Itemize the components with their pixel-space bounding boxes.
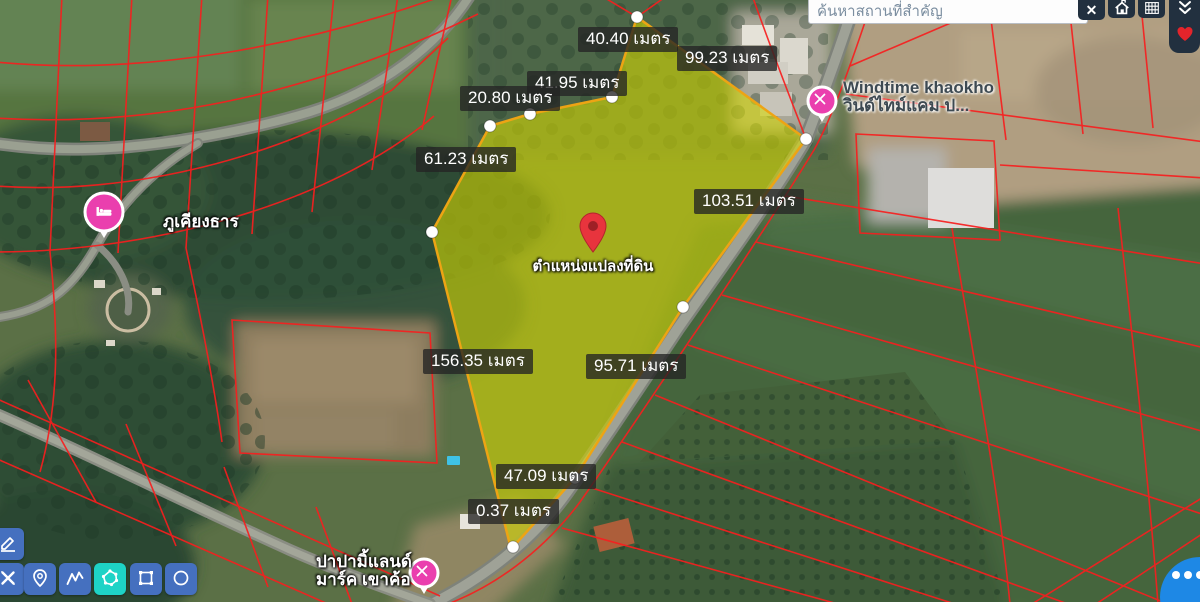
measurement-label: 47.09 เมตร (496, 464, 596, 489)
pencil-icon (0, 533, 18, 556)
basemap-grid-button[interactable] (1138, 0, 1165, 18)
measurement-label: 61.23 เมตร (416, 147, 516, 172)
home-icon (1112, 0, 1132, 20)
poi-label-line: ปาปามิ้แลนด์ (316, 553, 412, 571)
grid-icon (1142, 0, 1162, 20)
home-button[interactable] (1108, 0, 1135, 18)
map-stage[interactable]: 40.40 เมตร99.23 เมตร41.95 เมตร20.80 เมตร… (0, 0, 1200, 602)
measure-line-button[interactable] (59, 563, 91, 595)
measurement-label: 95.71 เมตร (586, 354, 686, 379)
measurement-label: 156.35 เมตร (423, 349, 533, 374)
measurement-label: 103.51 เมตร (694, 189, 804, 214)
poi-marker-windtime-khaokho[interactable] (805, 84, 839, 131)
favorite-heart-icon[interactable] (1175, 24, 1195, 49)
measurement-label: 0.37 เมตร (468, 499, 559, 524)
poi-label-papa-me-land: ปาปามิ้แลนด์มาร์ค เขาค้อ (316, 553, 412, 589)
poi-marker-phu-khiang-than[interactable] (82, 190, 126, 247)
polygon-icon (100, 568, 120, 591)
draw-rectangle-button[interactable] (130, 563, 162, 595)
parcel-pin-label: ตำแหน่งแปลงที่ดิน (533, 254, 654, 278)
measurement-label: 20.80 เมตร (460, 86, 560, 111)
pin-icon (30, 568, 50, 591)
collapse-chevrons-icon (1175, 0, 1195, 23)
poi-label-windtime-khaokho: Windtime khaokhoวินด์ไทม์แคม ป... (843, 79, 994, 115)
search-input[interactable] (808, 0, 1088, 24)
erase-button[interactable] (0, 563, 24, 595)
drop-pin-button[interactable] (24, 563, 56, 595)
edit-button[interactable] (0, 528, 24, 560)
draw-polygon-button[interactable] (94, 563, 126, 595)
rectangle-icon (136, 568, 156, 591)
poi-label-line: ภูเคียงธาร (163, 213, 239, 231)
poi-label-line: มาร์ค เขาค้อ (316, 571, 412, 589)
poi-label-line: วินด์ไทม์แคม ป... (843, 97, 994, 115)
cross-tools-icon (0, 568, 18, 591)
draw-circle-button[interactable] (165, 563, 197, 595)
search-clear-button[interactable]: ✕ (1078, 0, 1105, 20)
poi-label-line: Windtime khaokho (843, 79, 994, 97)
poi-marker-papa-me-land[interactable] (407, 556, 441, 602)
measurement-label: 40.40 เมตร (578, 27, 678, 52)
poi-label-phu-khiang-than: ภูเคียงธาร (163, 213, 239, 231)
ellipsis-icon (1172, 571, 1200, 579)
parcel-pin-icon (578, 212, 608, 253)
circle-icon (171, 568, 191, 591)
close-icon: ✕ (1086, 2, 1098, 19)
side-panel-tab[interactable] (1169, 0, 1200, 53)
measurement-label: 99.23 เมตร (677, 46, 777, 71)
polyline-icon (65, 568, 85, 591)
